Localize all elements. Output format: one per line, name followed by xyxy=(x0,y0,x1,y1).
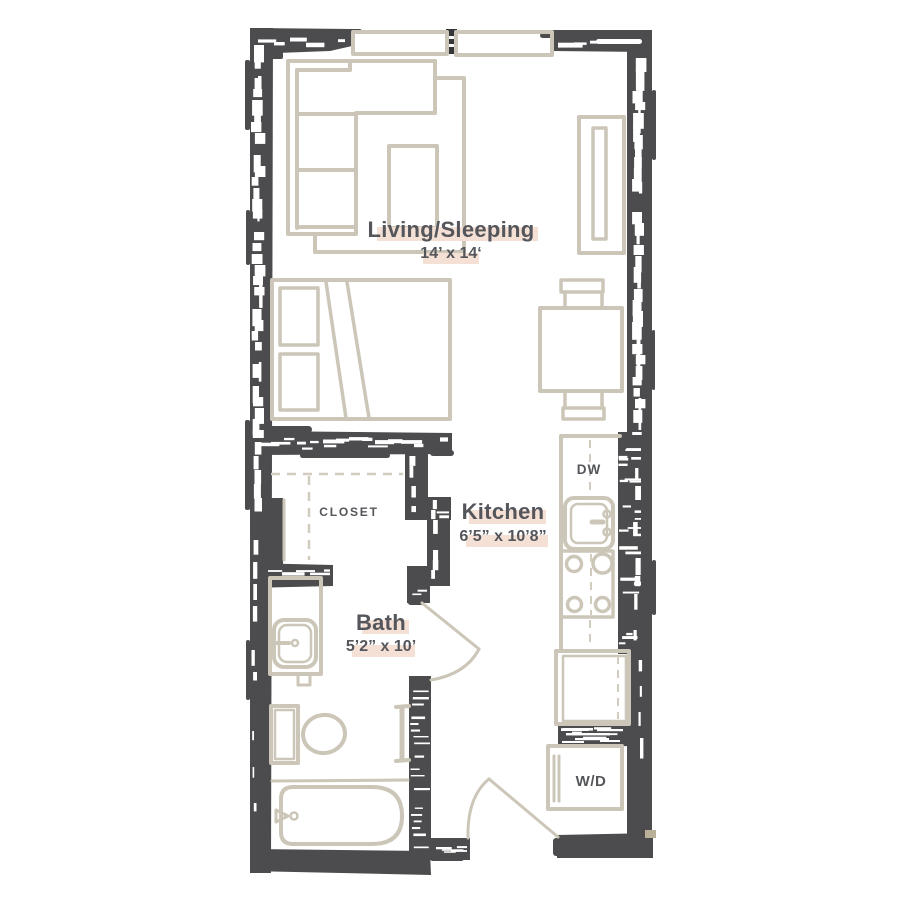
svg-text:Living/Sleeping: Living/Sleeping xyxy=(367,217,534,242)
svg-text:5’2” x 10’: 5’2” x 10’ xyxy=(346,638,416,655)
svg-text:Bath: Bath xyxy=(356,610,406,635)
svg-text:14’ x 14‘: 14’ x 14‘ xyxy=(420,245,481,262)
svg-text:Kitchen: Kitchen xyxy=(462,499,545,524)
svg-text:W/D: W/D xyxy=(576,773,607,790)
svg-text:DW: DW xyxy=(577,462,602,477)
svg-text:CLOSET: CLOSET xyxy=(319,505,378,519)
svg-text:6’5” x 10’8”: 6’5” x 10’8” xyxy=(459,528,546,545)
